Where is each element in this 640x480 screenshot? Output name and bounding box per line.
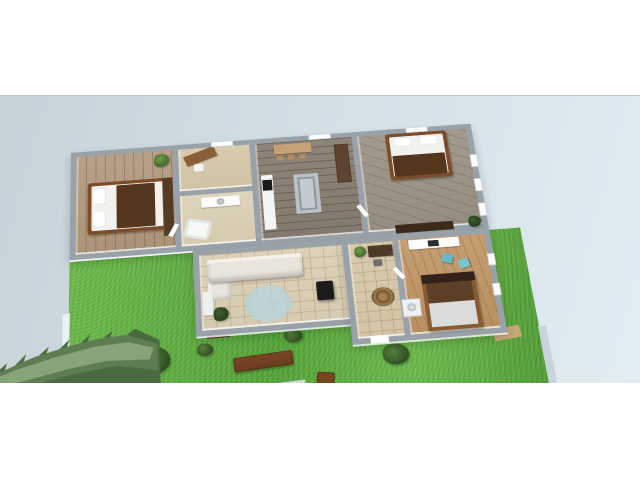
room-living: [199, 245, 350, 331]
dining-chair: [276, 155, 283, 160]
window: [479, 203, 487, 215]
bed-blanket: [392, 152, 448, 177]
room-bathroom: [180, 191, 256, 247]
bathroom-vanity: [201, 195, 240, 208]
hall-desk: [367, 244, 393, 257]
double-bed: [385, 130, 453, 180]
bed-pillow: [92, 210, 106, 228]
desk-chair: [194, 164, 204, 172]
bed-blanket: [116, 183, 155, 229]
render-canvas[interactable]: [0, 0, 640, 480]
window: [475, 179, 483, 191]
bed-pillow: [393, 137, 413, 148]
house-lower-wing: [193, 239, 357, 337]
room-hallway: [348, 241, 405, 339]
potted-plant: [154, 154, 169, 168]
room-study: [178, 145, 252, 192]
room-kitchen: [255, 137, 363, 240]
front-door: [370, 335, 389, 344]
bed-pillow: [92, 188, 105, 205]
dining-chair: [288, 155, 295, 160]
single-bed: [421, 271, 483, 331]
room-bedroom-2: [357, 129, 482, 233]
potted-plant: [467, 215, 481, 227]
area-rug: [244, 284, 293, 324]
potted-plant: [213, 307, 229, 322]
sideboard: [202, 292, 213, 316]
round-rug: [371, 286, 396, 307]
garden-wall: [538, 326, 569, 384]
potted-plant: [354, 246, 367, 257]
floor-cushion: [441, 253, 454, 264]
kitchen-counter: [261, 175, 277, 230]
bed-pillow: [419, 135, 439, 146]
dining-table: [274, 142, 312, 154]
pine-tree: [0, 315, 171, 384]
window: [470, 155, 478, 167]
desk-chair: [373, 259, 383, 267]
floor-cushion: [457, 257, 471, 269]
sofa: [207, 253, 303, 283]
dining-chair: [299, 154, 306, 159]
washing-machine: [402, 299, 421, 317]
room-bedroom-3: [398, 234, 500, 335]
bush: [284, 328, 303, 342]
bush: [381, 342, 410, 365]
house-lower-wing: [341, 228, 507, 345]
sink: [216, 198, 224, 205]
bathtub: [183, 218, 212, 240]
sky-background: [0, 95, 640, 384]
tv: [316, 280, 335, 300]
room-bedroom-1: [76, 150, 176, 255]
garden-bench: [233, 350, 294, 373]
laptop: [428, 240, 440, 247]
stove: [262, 180, 272, 191]
teen-desk: [408, 237, 460, 250]
top-letterbox: [0, 0, 640, 95]
kitchen-cabinet: [334, 144, 352, 183]
floorplan-scene: [50, 104, 621, 384]
double-bed: [87, 178, 169, 235]
kitchen-island: [293, 173, 322, 214]
bed-sheet: [429, 300, 479, 327]
island-top: [299, 178, 315, 208]
bottom-letterbox: [0, 383, 640, 480]
bush: [197, 343, 214, 357]
plot: [50, 104, 621, 384]
